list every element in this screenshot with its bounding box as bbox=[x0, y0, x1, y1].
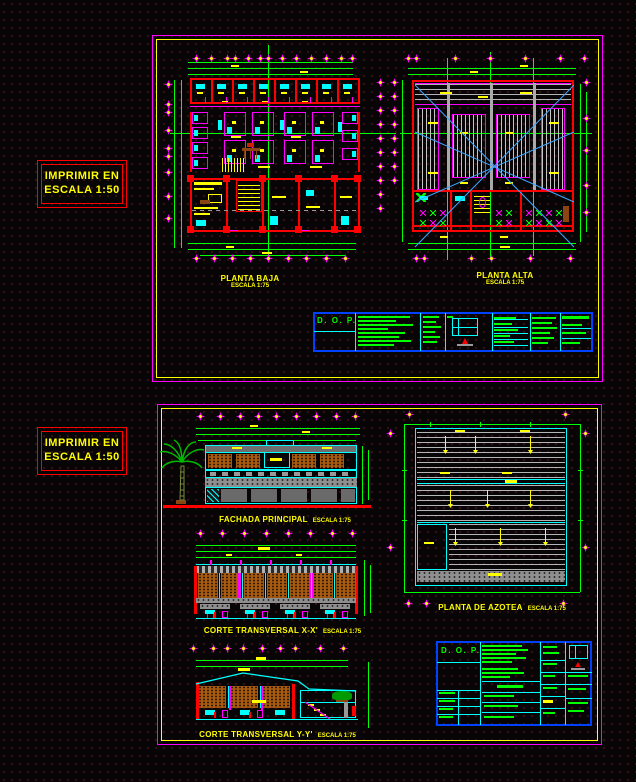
cad-primitive bbox=[200, 200, 210, 204]
cad-primitive bbox=[330, 560, 332, 565]
cad-primitive bbox=[352, 97, 353, 103]
cad-primitive bbox=[543, 652, 559, 654]
cad-primitive bbox=[358, 316, 410, 318]
cad-primitive bbox=[196, 545, 356, 546]
cad-primitive bbox=[417, 522, 565, 523]
corte-x-title: CORTE TRANSVERSAL X-X' bbox=[204, 626, 318, 635]
cad-primitive bbox=[336, 573, 356, 598]
cad-primitive bbox=[370, 565, 371, 613]
grid-bubble bbox=[376, 148, 385, 157]
grid-bubble bbox=[164, 152, 173, 161]
cad-primitive bbox=[543, 663, 557, 665]
cad-primitive bbox=[194, 182, 222, 185]
grid-bubble bbox=[582, 208, 591, 217]
cad-primitive bbox=[272, 196, 286, 198]
cad-primitive bbox=[323, 92, 329, 94]
azotea-title: PLANTA DE AZOTEA bbox=[438, 603, 523, 612]
fachada-title: FACHADA PRINCIPAL bbox=[219, 515, 308, 524]
cad-primitive bbox=[330, 472, 336, 476]
cad-primitive bbox=[455, 430, 465, 432]
grid-bubble bbox=[376, 134, 385, 143]
cad-primitive bbox=[482, 681, 540, 682]
cad-primitive bbox=[246, 472, 252, 476]
cad-primitive bbox=[244, 573, 264, 598]
cad-primitive bbox=[306, 190, 314, 196]
cad-primitive bbox=[334, 573, 335, 598]
cad-primitive bbox=[484, 705, 518, 707]
grid-bubble bbox=[412, 254, 421, 263]
grid-bubble bbox=[486, 54, 495, 63]
cad-primitive bbox=[260, 92, 266, 94]
cad-primitive bbox=[455, 528, 456, 542]
cad-primitive bbox=[439, 700, 455, 702]
cad-primitive bbox=[290, 573, 310, 598]
cad-primitive bbox=[194, 566, 197, 614]
cad-primitive bbox=[207, 489, 219, 502]
cad-primitive bbox=[494, 345, 528, 346]
cad-primitive bbox=[331, 175, 338, 182]
cad-primitive bbox=[322, 84, 331, 89]
grid-bubble bbox=[164, 108, 173, 117]
cad-primitive bbox=[480, 422, 481, 427]
grid-bubble bbox=[240, 529, 249, 538]
grid-bubble bbox=[376, 190, 385, 199]
cad-primitive bbox=[494, 317, 516, 319]
planta-baja-scale: ESCALA 1:75 bbox=[185, 283, 315, 289]
cad-primitive bbox=[196, 428, 360, 429]
grid-bubble bbox=[376, 120, 385, 129]
cad-primitive bbox=[260, 149, 264, 152]
cad-primitive bbox=[402, 470, 407, 471]
cad-primitive bbox=[352, 133, 356, 139]
cad-primitive bbox=[532, 332, 550, 334]
grid-bubble bbox=[376, 106, 385, 115]
cad-primitive bbox=[196, 557, 356, 558]
azotea-label: PLANTA DE AZOTEAESCALA 1:75 bbox=[432, 597, 572, 615]
grid-bubble bbox=[258, 644, 267, 653]
cad-primitive bbox=[250, 151, 251, 159]
cad-primitive bbox=[311, 573, 312, 598]
grid-bubble bbox=[196, 412, 205, 421]
grid-bubble bbox=[412, 54, 421, 63]
grid-bubble bbox=[451, 54, 460, 63]
cad-primitive bbox=[194, 188, 214, 190]
grid-bubble bbox=[521, 54, 530, 63]
cad-primitive bbox=[194, 160, 198, 166]
cad-primitive bbox=[256, 151, 257, 159]
cad-primitive bbox=[569, 645, 588, 659]
cad-primitive bbox=[423, 316, 439, 318]
azotea-scale: ESCALA 1:75 bbox=[528, 606, 566, 612]
cad-primitive bbox=[338, 122, 342, 132]
cad-primitive bbox=[232, 121, 236, 124]
cad-primitive bbox=[296, 554, 302, 556]
cad-primitive bbox=[457, 344, 473, 346]
cad-primitive bbox=[198, 573, 218, 598]
cad-primitive bbox=[208, 194, 222, 203]
planta-alta-title: PLANTA ALTA bbox=[435, 271, 575, 280]
cad-primitive bbox=[208, 454, 232, 468]
grid-bubble bbox=[164, 168, 173, 177]
grid-bubble bbox=[420, 254, 429, 263]
cad-primitive bbox=[200, 604, 230, 609]
cad-primitive bbox=[482, 712, 540, 713]
grid-bubble bbox=[216, 412, 225, 421]
grid-bubble bbox=[376, 162, 385, 171]
cad-primitive bbox=[358, 320, 396, 322]
planta-alta-scale: ESCALA 1:75 bbox=[435, 280, 575, 286]
cad-primitive bbox=[253, 80, 255, 102]
cad-primitive bbox=[318, 472, 324, 476]
grid-bubble bbox=[390, 78, 399, 87]
grid-bubble bbox=[272, 412, 281, 421]
cad-primitive bbox=[194, 115, 198, 121]
cad-primitive bbox=[205, 97, 206, 103]
cad-primitive bbox=[575, 645, 576, 659]
cad-primitive bbox=[240, 604, 270, 609]
cad-primitive bbox=[181, 80, 182, 248]
cad-primitive bbox=[194, 130, 198, 136]
cad-primitive bbox=[188, 62, 353, 63]
cad-primitive bbox=[240, 560, 242, 565]
cad-primitive bbox=[302, 611, 308, 618]
cad-primitive bbox=[439, 708, 453, 710]
cad-primitive bbox=[482, 668, 518, 670]
cad-primitive bbox=[291, 136, 301, 138]
cad-primitive bbox=[494, 327, 528, 328]
grid-bubble bbox=[236, 412, 245, 421]
cad-primitive bbox=[445, 313, 446, 351]
cad-primitive bbox=[354, 226, 361, 233]
cad-primitive bbox=[288, 573, 289, 598]
cad-primitive bbox=[358, 324, 413, 326]
cad-primitive bbox=[580, 424, 581, 592]
grid-bubble bbox=[348, 529, 357, 538]
cad-primitive bbox=[295, 175, 302, 182]
cad-primitive bbox=[578, 520, 583, 521]
cad-primitive bbox=[540, 660, 565, 661]
grid-bubble bbox=[276, 644, 285, 653]
cad-primitive bbox=[543, 712, 555, 714]
cad-primitive bbox=[352, 115, 356, 121]
cad-primitive bbox=[505, 480, 517, 483]
cad-primitive bbox=[562, 324, 582, 326]
cad-primitive bbox=[295, 226, 302, 233]
cad-primitive bbox=[196, 551, 356, 552]
cad-primitive bbox=[565, 672, 592, 673]
cad-primitive bbox=[543, 687, 557, 689]
cad-primitive bbox=[311, 489, 337, 502]
cad-primitive bbox=[236, 454, 260, 468]
cad-primitive bbox=[320, 604, 350, 609]
cad-primitive bbox=[211, 80, 213, 102]
grid-bubble bbox=[561, 410, 570, 419]
grid-bubble bbox=[582, 114, 591, 123]
grid-bubble bbox=[332, 412, 341, 421]
grid-bubble bbox=[556, 54, 565, 63]
cad-primitive bbox=[494, 329, 518, 331]
cad-primitive bbox=[280, 604, 310, 609]
cad-primitive bbox=[239, 92, 245, 94]
grid-bubble bbox=[390, 120, 399, 129]
cad-primitive bbox=[258, 166, 270, 168]
grid-bubble bbox=[581, 543, 590, 552]
cad-primitive bbox=[232, 447, 242, 449]
cad-primitive bbox=[543, 646, 557, 648]
cad-primitive bbox=[258, 547, 270, 550]
cad-primitive bbox=[200, 255, 345, 256]
grid-bubble bbox=[467, 254, 476, 263]
cad-primitive bbox=[223, 175, 230, 182]
fachada-scale: ESCALA 1:75 bbox=[313, 518, 351, 524]
cad-primitive bbox=[358, 328, 388, 330]
cad-primitive bbox=[270, 216, 278, 225]
cad-primitive bbox=[238, 84, 247, 89]
grid-bubble bbox=[196, 529, 205, 538]
grid-bubble bbox=[390, 176, 399, 185]
grid-bubble bbox=[312, 412, 321, 421]
cad-primitive bbox=[247, 97, 248, 103]
cad-primitive bbox=[320, 149, 324, 152]
cad-primitive bbox=[322, 447, 332, 449]
grid-bubble bbox=[390, 162, 399, 171]
cad-primitive bbox=[568, 688, 586, 690]
cad-primitive bbox=[294, 472, 300, 476]
cad-primitive bbox=[482, 702, 540, 703]
cad-primitive bbox=[226, 97, 227, 103]
cad-primitive bbox=[292, 149, 296, 152]
cad-primitive bbox=[205, 478, 357, 487]
cad-primitive bbox=[192, 210, 358, 211]
grid-bubble bbox=[292, 412, 301, 421]
cad-primitive bbox=[565, 684, 592, 685]
cad-primitive bbox=[262, 252, 272, 254]
cad-primitive bbox=[532, 342, 548, 344]
cad-primitive bbox=[571, 668, 585, 670]
cad-primitive bbox=[530, 422, 531, 427]
cad-primitive bbox=[482, 676, 510, 678]
cad-primitive bbox=[226, 246, 234, 248]
cad-primitive bbox=[274, 80, 276, 102]
cad-primitive bbox=[565, 698, 592, 699]
cad-primitive bbox=[196, 434, 360, 435]
cad-primitive bbox=[231, 65, 239, 67]
cad-primitive bbox=[218, 120, 222, 130]
planta-alta-diagonals bbox=[408, 78, 578, 250]
cad-primitive bbox=[404, 592, 580, 593]
cad-primitive bbox=[488, 573, 502, 576]
cad-primitive bbox=[562, 342, 580, 344]
cad-primitive bbox=[262, 178, 264, 232]
cad-canvas[interactable]: IMPRIMIR EN ESCALA 1:50 IMPRIMIR EN ESCA… bbox=[0, 0, 636, 782]
cad-primitive bbox=[417, 483, 565, 484]
cad-primitive bbox=[423, 326, 441, 328]
cad-primitive bbox=[292, 454, 316, 468]
cad-primitive bbox=[540, 696, 565, 697]
cad-primitive bbox=[287, 127, 292, 134]
grid-bubble bbox=[376, 204, 385, 213]
cad-primitive bbox=[358, 344, 394, 346]
grid-bubble bbox=[164, 214, 173, 223]
cad-primitive bbox=[417, 479, 565, 480]
cad-primitive bbox=[450, 490, 451, 504]
cad-primitive bbox=[530, 436, 531, 450]
cad-primitive bbox=[402, 520, 407, 521]
cad-primitive bbox=[568, 702, 588, 704]
cad-primitive bbox=[354, 175, 361, 182]
cad-primitive bbox=[341, 489, 355, 502]
cad-primitive bbox=[210, 560, 212, 565]
cad-primitive bbox=[259, 84, 268, 89]
cad-primitive bbox=[331, 226, 338, 233]
grid-bubble bbox=[239, 644, 248, 653]
cad-primitive bbox=[362, 446, 363, 504]
planta-baja-title: PLANTA BAJA bbox=[185, 274, 315, 283]
cad-primitive bbox=[270, 472, 276, 476]
cad-primitive bbox=[545, 528, 546, 542]
cad-primitive bbox=[494, 333, 528, 334]
cad-primitive bbox=[530, 490, 531, 504]
cad-primitive bbox=[231, 136, 241, 138]
cad-primitive bbox=[352, 151, 356, 157]
cad-primitive bbox=[262, 101, 268, 102]
cad-primitive bbox=[482, 692, 540, 693]
cad-primitive bbox=[310, 166, 322, 168]
cad-primitive bbox=[408, 68, 576, 69]
cad-primitive bbox=[439, 692, 455, 694]
cad-primitive bbox=[188, 74, 353, 75]
cad-primitive bbox=[470, 71, 478, 73]
cad-primitive bbox=[232, 149, 236, 152]
palm-tree bbox=[156, 436, 208, 506]
grid-bubble bbox=[262, 529, 271, 538]
cad-primitive bbox=[315, 155, 320, 162]
grid-bubble bbox=[306, 529, 315, 538]
cad-primitive bbox=[302, 92, 308, 94]
cad-primitive bbox=[219, 573, 220, 598]
cad-primitive bbox=[222, 611, 228, 618]
cad-primitive bbox=[196, 564, 356, 565]
cad-primitive bbox=[543, 700, 553, 703]
cad-primitive bbox=[287, 155, 292, 162]
cad-primitive bbox=[313, 573, 333, 598]
cad-primitive bbox=[174, 80, 175, 248]
grid-bubble bbox=[390, 106, 399, 115]
grid-bubble bbox=[316, 644, 325, 653]
grid-bubble bbox=[386, 429, 395, 438]
cad-primitive bbox=[280, 84, 289, 89]
corte-x-label: CORTE TRANSVERSAL X-X'ESCALA 1:75 bbox=[195, 620, 370, 638]
cad-primitive bbox=[364, 560, 365, 616]
cad-primitive bbox=[408, 74, 576, 75]
cad-primitive bbox=[487, 490, 488, 504]
fachada-label: FACHADA PRINCIPALESCALA 1:75 bbox=[200, 509, 370, 527]
cad-primitive bbox=[302, 101, 308, 102]
corte-y-title: CORTE TRANSVERSAL Y-Y' bbox=[199, 730, 313, 739]
grid-bubble bbox=[581, 429, 590, 438]
cad-primitive bbox=[267, 573, 287, 598]
cad-primitive bbox=[238, 182, 260, 210]
cad-primitive bbox=[194, 207, 218, 209]
cad-primitive bbox=[520, 65, 528, 67]
grid-bubble bbox=[582, 146, 591, 155]
grid-bubble bbox=[189, 644, 198, 653]
cad-primitive bbox=[562, 332, 586, 334]
cad-primitive bbox=[306, 206, 320, 208]
titleblock-top-org: D. O. P. bbox=[317, 316, 356, 325]
cad-primitive bbox=[196, 566, 356, 573]
grid-bubble bbox=[404, 54, 413, 63]
grid-bubble bbox=[566, 254, 575, 263]
cad-primitive bbox=[218, 92, 224, 94]
cad-primitive bbox=[458, 690, 459, 725]
grid-bubble bbox=[580, 54, 589, 63]
cad-primitive bbox=[295, 80, 297, 102]
cad-primitive bbox=[341, 216, 349, 225]
cad-primitive bbox=[289, 97, 290, 103]
cad-primitive bbox=[251, 489, 277, 502]
cad-primitive bbox=[532, 337, 554, 339]
cad-primitive bbox=[494, 323, 512, 325]
grid-bubble bbox=[284, 529, 293, 538]
cad-primitive bbox=[222, 101, 228, 102]
cad-primitive bbox=[475, 436, 476, 450]
grid-bubble bbox=[376, 176, 385, 185]
cad-primitive bbox=[417, 524, 447, 570]
cad-primitive bbox=[430, 422, 431, 427]
cad-primitive bbox=[320, 454, 344, 468]
cad-primitive bbox=[343, 84, 352, 89]
grid-bubble bbox=[405, 410, 414, 419]
cad-primitive bbox=[256, 657, 266, 660]
cad-primitive bbox=[494, 335, 510, 337]
cad-primitive bbox=[266, 440, 294, 446]
cad-primitive bbox=[482, 653, 516, 655]
cad-primitive bbox=[320, 121, 324, 124]
cad-primitive bbox=[358, 340, 411, 342]
grid-bubble bbox=[390, 148, 399, 157]
cad-primitive bbox=[342, 611, 348, 618]
cad-primitive bbox=[250, 425, 258, 427]
cad-primitive bbox=[280, 120, 284, 130]
cad-primitive bbox=[423, 341, 437, 343]
cad-primitive bbox=[497, 685, 523, 688]
cad-primitive bbox=[210, 472, 216, 476]
corte-x-scale: ESCALA 1:75 bbox=[323, 629, 361, 635]
cad-primitive bbox=[494, 319, 528, 320]
cad-primitive bbox=[420, 313, 421, 351]
cad-primitive bbox=[452, 327, 478, 328]
cad-primitive bbox=[268, 97, 269, 103]
cad-primitive bbox=[188, 68, 353, 69]
cad-primitive bbox=[298, 178, 300, 232]
cad-primitive bbox=[344, 92, 350, 94]
corte-y-roofline bbox=[190, 664, 370, 724]
grid-bubble bbox=[386, 543, 395, 552]
cad-primitive bbox=[568, 675, 588, 677]
grid-bubble bbox=[164, 100, 173, 109]
planta-alta-label: PLANTA ALTA ESCALA 1:75 bbox=[435, 271, 575, 286]
cad-primitive bbox=[197, 92, 203, 94]
cad-primitive bbox=[358, 336, 399, 338]
cad-primitive bbox=[258, 472, 264, 476]
cad-primitive bbox=[543, 675, 555, 677]
cad-primitive bbox=[226, 178, 228, 232]
grid-bubble bbox=[209, 644, 218, 653]
cad-primitive bbox=[502, 472, 512, 474]
cad-primitive bbox=[560, 313, 561, 351]
cad-primitive bbox=[568, 710, 584, 712]
